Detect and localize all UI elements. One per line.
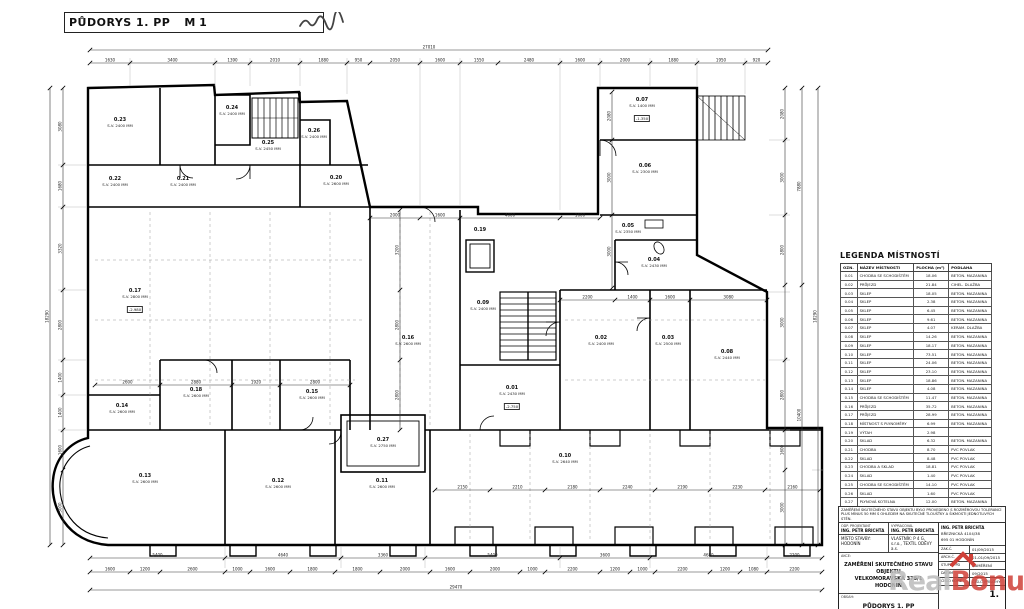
watermark: RealBonus.cz (888, 566, 1024, 597)
legend-ozn: 0.18 (841, 419, 858, 428)
legend-plocha: 21.84 (914, 280, 949, 289)
legend-nazev: SKLEP (857, 306, 914, 315)
room-clear-height: S.V. 2600 MM (380, 342, 436, 346)
room-label-0.20: 0.20S.V. 2600 MM (308, 176, 364, 186)
legend-ozn: 0.09 (841, 341, 858, 350)
room-label-0.11: 0.11S.V. 2600 MM (354, 479, 410, 489)
legend-podlaha: BETON. MAZANINA (949, 367, 992, 376)
legend-nazev: MÍSTNOST S PLYNOMĚRY (857, 419, 914, 428)
legend-ozn: 0.11 (841, 358, 858, 367)
blueprint-page: 2701016303400139020101880950205016001550… (0, 0, 1024, 609)
legend-ozn: 0.17 (841, 411, 858, 420)
legend-ozn: 0.19 (841, 428, 858, 437)
room-label-0.25: 0.25S.V. 2450 MM (240, 141, 296, 151)
legend-row: 0.06SKLEP9.61BETON. MAZANINA (841, 315, 992, 324)
legend-nazev: SKLEP (857, 367, 914, 376)
legend-row: 0.26SKLAD1.60PVC POVLAK (841, 489, 992, 498)
legend-nazev: SKLEP (857, 358, 914, 367)
legend-podlaha: BETON. MAZANINA (949, 497, 992, 506)
room-clear-height: S.V. 1400 MM (614, 104, 670, 108)
legend-nazev: VÝTAH (857, 428, 914, 437)
legend-nazev: PRŮJEZD (857, 411, 914, 420)
legend-plocha: 11.47 (914, 393, 949, 402)
room-clear-height: S.V. 2450 MM (240, 147, 296, 151)
room-clear-height: S.V. 2400 MM (286, 135, 342, 139)
legend-row: 0.22SKLAD8.48PVC POVLAK (841, 454, 992, 463)
room-label-0.17: 0.17S.V. 2800 MM (107, 289, 163, 299)
legend-nazev: CHODBA SE SCHODIŠTĚM (857, 480, 914, 489)
room-clear-height: S.V. 2600 MM (117, 480, 173, 484)
legend-plocha: 1.40 (914, 471, 949, 480)
room-clear-height: S.V. 2750 MM (355, 444, 411, 448)
legend-ozn: 0.05 (841, 306, 858, 315)
legend-nazev: SKLEP (857, 324, 914, 333)
elevation-tag: -2.750 (504, 403, 520, 410)
room-label-0.07: 0.07S.V. 1400 MM (614, 98, 670, 108)
legend-plocha: 24.06 (914, 358, 949, 367)
legend-podlaha: BETON. MAZANINA (949, 402, 992, 411)
legend-nazev: SKLEP (857, 315, 914, 324)
room-label-0.27: 0.27S.V. 2750 MM (355, 438, 411, 448)
room-label-0.08: 0.08S.V. 2440 MM (699, 350, 755, 360)
legend-nazev: CHODBA SE SCHODIŠTĚM (857, 393, 914, 402)
obsah-value: PŮDORYS 1. PP (841, 603, 936, 609)
legend-plocha: 18.86 (914, 376, 949, 385)
room-label-0.04: 0.04S.V. 2430 MM (626, 258, 682, 268)
legend-col-ozn: OZN. (841, 264, 858, 272)
firm-street: BŘEZNICKÁ 4104/38 (941, 531, 980, 536)
legend-row: 0.08SKLEP14.26BETON. MAZANINA (841, 332, 992, 341)
misto-stavby: MÍSTO STAVBY: HODONÍN (841, 536, 871, 546)
legend-ozn: 0.08 (841, 332, 858, 341)
akce-label: AKCE: (841, 554, 936, 558)
legend-ozn: 0.26 (841, 489, 858, 498)
legend-row: 0.23CHODBA A SKLAD18.81PVC POVLAK (841, 463, 992, 472)
legend-nazev: SKLEP (857, 341, 914, 350)
legend-table: OZN. NÁZEV MÍSTNOSTI PLOCHA (m²) PODLAHA… (840, 263, 992, 507)
legend-row: 0.03SKLEP18.05BETON. MAZANINA (841, 289, 992, 298)
legend-row: 0.19VÝTAH2.98 (841, 428, 992, 437)
legend-plocha: 6.32 (914, 437, 949, 446)
legend-podlaha: CIHEL. DLAŽBA (949, 280, 992, 289)
legend-podlaha: PVC POVLAK (949, 463, 992, 472)
room-clear-height: S.V. 2600 MM (250, 485, 306, 489)
legend-row: 0.12SKLEP23.10BETON. MAZANINA (841, 367, 992, 376)
room-legend: LEGENDA MÍSTNOSTÍ OZN. NÁZEV MÍSTNOSTI P… (840, 251, 994, 507)
watermark-bonus: Bonus (951, 566, 1024, 597)
room-number: 0.19 (452, 228, 508, 234)
legend-row: 0.05SKLEP6.45BETON. MAZANINA (841, 306, 992, 315)
legend-plocha: 6.99 (914, 419, 949, 428)
legend-row: 0.07SKLEP4.07KERAM. DLAŽBA (841, 324, 992, 333)
legend-nazev: CHODBA A SKLAD (857, 463, 914, 472)
legend-plocha: 73.51 (914, 350, 949, 359)
room-clear-height: S.V. 2300 MM (617, 170, 673, 174)
legend-ozn: 0.14 (841, 384, 858, 393)
legend-nazev: SKLEP (857, 384, 914, 393)
room-clear-height: S.V. 2400 MM (92, 124, 148, 128)
elevation-tag: -1.350 (634, 115, 650, 122)
drawing-title-box: PŮDORYS 1. PP M 1 (64, 12, 324, 33)
room-clear-height: S.V. 2500 MM (640, 342, 696, 346)
room-clear-height: S.V. 2400 MM (573, 342, 629, 346)
legend-podlaha (949, 428, 992, 437)
legend-nazev: SKLAD (857, 454, 914, 463)
legend-row: 0.10SKLEP73.51BETON. MAZANINA (841, 350, 992, 359)
legend-nazev: SKLEP (857, 376, 914, 385)
legend-podlaha: BETON. MAZANINA (949, 306, 992, 315)
legend-plocha: 18.81 (914, 463, 949, 472)
legend-nazev: PRŮJEZD (857, 280, 914, 289)
legend-plocha: 18.05 (914, 289, 949, 298)
legend-podlaha: PVC POVLAK (949, 480, 992, 489)
legend-row: 0.04SKLEP2.38BETON. MAZANINA (841, 298, 992, 307)
legend-ozn: 0.20 (841, 437, 858, 446)
legend-nazev: PLYNOVÁ KOTELNA (857, 497, 914, 506)
firm-address: ING. PETR BRICHTA BŘEZNICKÁ 4104/38 695 … (939, 523, 1005, 545)
legend-ozn: 0.22 (841, 454, 858, 463)
legend-plocha: 4.08 (914, 384, 949, 393)
legend-ozn: 0.27 (841, 497, 858, 506)
legend-plocha: 18.06 (914, 272, 949, 281)
legend-nazev: SKLAD (857, 471, 914, 480)
legend-title: LEGENDA MÍSTNOSTÍ (840, 251, 994, 260)
room-clear-height: S.V. 2600 MM (168, 394, 224, 398)
legend-podlaha: BETON. MAZANINA (949, 315, 992, 324)
legend-nazev: CHODBA SE SCHODIŠTĚM (857, 272, 914, 281)
legend-podlaha: BETON. MAZANINA (949, 393, 992, 402)
legend-podlaha: BETON. MAZANINA (949, 376, 992, 385)
legend-podlaha: PVC POVLAK (949, 454, 992, 463)
room-clear-height: S.V. 2430 MM (484, 392, 540, 396)
firm-name: ING. PETR BRICHTA (941, 525, 984, 530)
room-clear-height: S.V. 2800 MM (107, 295, 163, 299)
legend-podlaha: BETON. MAZANINA (949, 298, 992, 307)
legend-ozn: 0.10 (841, 350, 858, 359)
legend-podlaha: BETON. MAZANINA (949, 358, 992, 367)
legend-row: 0.11SKLEP24.06BETON. MAZANINA (841, 358, 992, 367)
room-label-0.12: 0.12S.V. 2600 MM (250, 479, 306, 489)
tolerance-note-line2: PLUS MÍNUS 50 MM S OHLEDEM NA SKUTEČNÉ T… (841, 512, 1003, 521)
legend-plocha: 14.26 (914, 332, 949, 341)
legend-podlaha: BETON. MAZANINA (949, 384, 992, 393)
legend-ozn: 0.07 (841, 324, 858, 333)
room-label-0.19: 0.19 (452, 228, 508, 234)
legend-podlaha: PVC POVLAK (949, 489, 992, 498)
room-label-0.21: 0.21S.V. 2400 MM (155, 177, 211, 187)
legend-ozn: 0.15 (841, 393, 858, 402)
legend-row: 0.15CHODBA SE SCHODIŠTĚM11.47BETON. MAZA… (841, 393, 992, 402)
legend-plocha: 18.17 (914, 341, 949, 350)
room-clear-height: S.V. 2600 MM (284, 396, 340, 400)
watermark-roof-icon (948, 551, 982, 569)
room-clear-height: S.V. 2350 MM (600, 230, 656, 234)
room-label-0.26: 0.26S.V. 2400 MM (286, 129, 342, 139)
room-label-0.03: 0.03S.V. 2500 MM (640, 336, 696, 346)
drawing-title: PŮDORYS 1. PP (69, 16, 170, 29)
room-clear-height: S.V. 2400 MM (455, 307, 511, 311)
legend-nazev: SKLEP (857, 350, 914, 359)
legend-col-nazev: NÁZEV MÍSTNOSTI (857, 264, 914, 272)
legend-podlaha: BETON. MAZANINA (949, 411, 992, 420)
legend-row: 0.02PRŮJEZD21.84CIHEL. DLAŽBA (841, 280, 992, 289)
legend-row: 0.13SKLEP18.86BETON. MAZANINA (841, 376, 992, 385)
legend-plocha: 8.48 (914, 454, 949, 463)
legend-ozn: 0.01 (841, 272, 858, 281)
elevation-tag: -2.980 (127, 306, 143, 313)
legend-plocha: 6.45 (914, 306, 949, 315)
room-label-0.23: 0.23S.V. 2400 MM (92, 118, 148, 128)
legend-row: 0.21CHODBA8.70PVC POVLAK (841, 445, 992, 454)
legend-row: 0.27PLYNOVÁ KOTELNA12.00BETON. MAZANINA (841, 497, 992, 506)
legend-row: 0.09SKLEP18.17BETON. MAZANINA (841, 341, 992, 350)
legend-row: 0.14SKLEP4.08BETON. MAZANINA (841, 384, 992, 393)
legend-nazev: CHODBA (857, 445, 914, 454)
room-clear-height: S.V. 2400 MM (155, 183, 211, 187)
legend-row: 0.18MÍSTNOST S PLYNOMĚRY6.99BETON. MAZAN… (841, 419, 992, 428)
legend-podlaha: BETON. MAZANINA (949, 289, 992, 298)
room-clear-height: S.V. 2600 MM (308, 182, 364, 186)
legend-plocha: 14.10 (914, 480, 949, 489)
watermark-real: Real (888, 566, 951, 597)
legend-plocha: 2.38 (914, 298, 949, 307)
legend-row: 0.16PRŮJEZD35.72BETON. MAZANINA (841, 402, 992, 411)
drawing-scale: M 1 (184, 16, 206, 29)
legend-ozn: 0.02 (841, 280, 858, 289)
room-label-0.05: 0.05S.V. 2350 MM (600, 224, 656, 234)
room-clear-height: S.V. 2400 MM (87, 183, 143, 187)
legend-podlaha: BETON. MAZANINA (949, 272, 992, 281)
legend-podlaha: BETON. MAZANINA (949, 419, 992, 428)
room-clear-height: S.V. 2640 MM (537, 460, 593, 464)
room-label-0.16: 0.16S.V. 2600 MM (380, 336, 436, 346)
legend-podlaha: PVC POVLAK (949, 445, 992, 454)
legend-plocha: 28.99 (914, 411, 949, 420)
room-label-0.01: 0.01S.V. 2430 MM (484, 386, 540, 396)
legend-row: 0.17PRŮJEZD28.99BETON. MAZANINA (841, 411, 992, 420)
legend-podlaha: PVC POVLAK (949, 471, 992, 480)
legend-plocha: 9.61 (914, 315, 949, 324)
room-clear-height: S.V. 2400 MM (204, 112, 260, 116)
legend-plocha: 4.07 (914, 324, 949, 333)
legend-col-podlaha: PODLAHA (949, 264, 992, 272)
firm-city: 695 01 HODONÍN (941, 537, 974, 542)
legend-ozn: 0.24 (841, 471, 858, 480)
room-label-0.10: 0.10S.V. 2640 MM (537, 454, 593, 464)
room-label-0.09: 0.09S.V. 2400 MM (455, 301, 511, 311)
room-clear-height: S.V. 2600 MM (94, 410, 150, 414)
room-label-0.22: 0.22S.V. 2400 MM (87, 177, 143, 187)
legend-podlaha: BETON. MAZANINA (949, 341, 992, 350)
legend-ozn: 0.25 (841, 480, 858, 489)
legend-plocha: 12.00 (914, 497, 949, 506)
room-label-0.13: 0.13S.V. 2600 MM (117, 474, 173, 484)
room-label-0.14: 0.14S.V. 2600 MM (94, 404, 150, 414)
room-label-0.02: 0.02S.V. 2400 MM (573, 336, 629, 346)
legend-nazev: SKLAD (857, 437, 914, 446)
legend-nazev: SKLEP (857, 298, 914, 307)
legend-row: 0.25CHODBA SE SCHODIŠTĚM14.10PVC POVLAK (841, 480, 992, 489)
legend-plocha: 1.60 (914, 489, 949, 498)
legend-row: 0.20SKLAD6.32BETON. MAZANINA (841, 437, 992, 446)
room-label-0.18: 0.18S.V. 2600 MM (168, 388, 224, 398)
legend-nazev: PRŮJEZD (857, 402, 914, 411)
legend-ozn: 0.21 (841, 445, 858, 454)
legend-ozn: 0.06 (841, 315, 858, 324)
room-clear-height: S.V. 2600 MM (354, 485, 410, 489)
legend-nazev: SKLEP (857, 289, 914, 298)
legend-plocha: 35.72 (914, 402, 949, 411)
legend-ozn: 0.23 (841, 463, 858, 472)
legend-plocha: 2.98 (914, 428, 949, 437)
room-label-0.15: 0.15S.V. 2600 MM (284, 390, 340, 400)
vlastnik: VLASTNÍK: P 4 G, s.r.o., TEXTIL ODĚVY a.… (891, 536, 932, 551)
tolerance-note: ZAMĚŘENÍ SKUTEČNÉHO STAVU OBJEKTU BYLO P… (838, 506, 1006, 523)
legend-ozn: 0.03 (841, 289, 858, 298)
legend-row: 0.01CHODBA SE SCHODIŠTĚM18.06BETON. MAZA… (841, 272, 992, 281)
legend-plocha: 23.10 (914, 367, 949, 376)
legend-row: 0.24SKLAD1.40PVC POVLAK (841, 471, 992, 480)
legend-ozn: 0.04 (841, 298, 858, 307)
legend-plocha: 8.70 (914, 445, 949, 454)
room-label-0.06: 0.06S.V. 2300 MM (617, 164, 673, 174)
vypracoval-value: ING. PETR BRICHTA (891, 528, 936, 533)
room-label-0.24: 0.24S.V. 2400 MM (204, 106, 260, 116)
legend-col-plocha: PLOCHA (m²) (914, 264, 949, 272)
room-clear-height: S.V. 2440 MM (699, 356, 755, 360)
legend-podlaha: BETON. MAZANINA (949, 332, 992, 341)
legend-nazev: SKLEP (857, 332, 914, 341)
legend-nazev: SKLAD (857, 489, 914, 498)
odp-projektant-value: ING. PETR BRICHTA (841, 528, 886, 533)
legend-ozn: 0.13 (841, 376, 858, 385)
legend-podlaha: KERAM. DLAŽBA (949, 324, 992, 333)
legend-podlaha: BETON. MAZANINA (949, 437, 992, 446)
legend-podlaha: BETON. MAZANINA (949, 350, 992, 359)
scale-scribble (296, 12, 356, 36)
legend-ozn: 0.12 (841, 367, 858, 376)
legend-ozn: 0.16 (841, 402, 858, 411)
room-clear-height: S.V. 2430 MM (626, 264, 682, 268)
